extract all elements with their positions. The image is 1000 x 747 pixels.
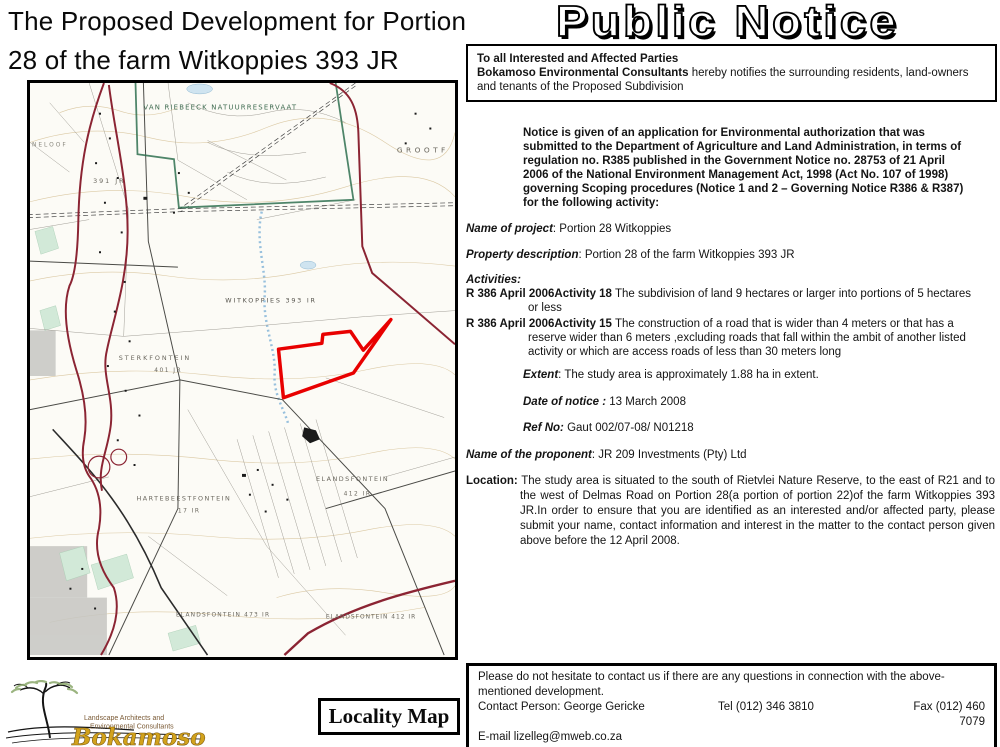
map-label-hartebeestfontein: HARTEBEESTFONTEIN — [136, 495, 231, 503]
location-row: Location: The study area is situated to … — [466, 474, 995, 549]
map-label-391jr: 391 JR — [93, 177, 125, 185]
map-label-hartebeestfontein-no: 17 IR — [178, 509, 201, 515]
logo-tagline-1: Landscape Architects and — [84, 715, 164, 722]
field-boundaries — [30, 83, 455, 635]
public-notice-page: The Proposed Development for Portion 28 … — [0, 0, 1000, 747]
page-title-line1: The Proposed Development for Portion — [8, 2, 478, 41]
ref-no-value: Gaut 002/07-08/ N01218 — [564, 422, 694, 434]
public-notice-headline: Public Notice Public Notice — [455, 0, 1000, 46]
project-row: Name of project: Portion 28 Witkoppies — [466, 222, 986, 236]
proponent-label: Name of the proponent — [466, 449, 592, 461]
map-label-witkoppies: WITKOPPIES 393 IR — [225, 297, 316, 305]
map-labels: VAN RIEBEECK NATUURRESERVAAT GROOTF NELO… — [32, 104, 449, 621]
reserve-boundary — [136, 83, 354, 208]
activity-18-label: R 386 April 2006Activity 18 — [466, 288, 612, 300]
ref-no-row: Ref No: Gaut 002/07-08/ N01218 — [523, 421, 983, 435]
map-label-elandsfontein-s2: ELANDSFONTEIN 412 IR — [326, 614, 416, 620]
bokamoso-logo: Landscape Architects and Environmental C… — [6, 680, 221, 747]
contact-fax: Fax (012) 460 7079 — [888, 700, 985, 730]
page-title-line2: 28 of the farm Witkoppies 393 JR — [8, 41, 478, 80]
map-label-elandsfontein-s1: ELANDSFONTEIN 473 IR — [176, 612, 270, 618]
activities-heading: Activities: — [466, 273, 986, 287]
map-label-grootfontein: GROOTF — [397, 145, 449, 154]
activity-18-row: R 386 April 2006Activity 18 The subdivis… — [466, 287, 975, 315]
intro-line2: Bokamoso Environmental Consultants hereb… — [477, 66, 986, 94]
extent-label: Extent — [523, 369, 558, 381]
date-of-notice-row: Date of notice : 13 March 2008 — [523, 395, 983, 409]
bokamoso-logo-svg: Landscape Architects and Environmental C… — [6, 680, 221, 747]
date-of-notice-label: Date of notice : — [523, 396, 606, 408]
activity-15-label: R 386 April 2006Activity 15 — [466, 318, 612, 330]
project-label: Name of project — [466, 223, 553, 235]
contact-intro: Please do not hesitate to contact us if … — [478, 670, 985, 700]
location-value: The study area is situated to the south … — [518, 475, 995, 547]
headline-outline-text: Public Notice — [433, 0, 1000, 46]
extent-row: Extent: The study area is approximately … — [523, 368, 983, 382]
locality-map: VAN RIEBEECK NATUURRESERVAAT GROOTF NELO… — [27, 80, 458, 660]
project-value: : Portion 28 Witkoppies — [553, 223, 671, 235]
locality-map-svg: VAN RIEBEECK NATUURRESERVAAT GROOTF NELO… — [30, 83, 455, 657]
page-title: The Proposed Development for Portion 28 … — [8, 2, 478, 80]
contact-details-row: Contact Person: George Gericke Tel (012)… — [478, 700, 985, 730]
extent-value: : The study area is approximately 1.88 h… — [558, 369, 819, 381]
location-label: Location: — [466, 475, 518, 487]
map-label-elandsfontein-e-no: 412 IR — [344, 492, 372, 498]
interested-parties-box: To all Interested and Affected Parties B… — [466, 44, 997, 102]
property-label: Property description — [466, 249, 578, 261]
map-label-kloof: NELOOF — [32, 142, 68, 148]
activity-15-row: R 386 April 2006Activity 15 The construc… — [466, 317, 978, 359]
locality-map-label: Locality Map — [329, 704, 450, 729]
contact-email: E-mail lizelleg@mweb.co.za — [478, 730, 985, 745]
study-area-outline — [278, 320, 390, 398]
intro-line1: To all Interested and Affected Parties — [477, 52, 986, 66]
property-row: Property description: Portion 28 of the … — [466, 248, 986, 262]
map-label-sterkfontein-no: 401 JR — [154, 368, 182, 374]
date-of-notice-value: 13 March 2008 — [606, 396, 686, 408]
contact-tel: Tel (012) 346 3810 — [718, 700, 888, 730]
proponent-row: Name of the proponent: JR 209 Investment… — [466, 448, 986, 462]
notice-paragraph: Notice is given of an application for En… — [523, 126, 964, 210]
consultant-name: Bokamoso Environmental Consultants — [477, 67, 689, 79]
water-features — [187, 84, 316, 424]
contact-box: Please do not hesitate to contact us if … — [466, 663, 997, 747]
logo-wordmark: Bokamoso — [71, 724, 206, 747]
property-value: : Portion 28 of the farm Witkoppies 393 … — [578, 249, 794, 261]
urban-areas — [30, 330, 107, 655]
contact-person: Contact Person: George Gericke — [478, 700, 718, 730]
map-label-sterkfontein: STERKFONTEIN — [119, 354, 191, 362]
ref-no-label: Ref No: — [523, 422, 564, 434]
locality-map-caption-box: Locality Map — [318, 698, 460, 735]
map-label-elandsfontein-e: ELANDSFONTEIN — [316, 475, 389, 483]
map-label-reserve: VAN RIEBEECK NATUURRESERVAAT — [143, 104, 297, 112]
dam-blob — [302, 427, 320, 443]
proponent-value: : JR 209 Investments (Pty) Ltd — [592, 449, 747, 461]
